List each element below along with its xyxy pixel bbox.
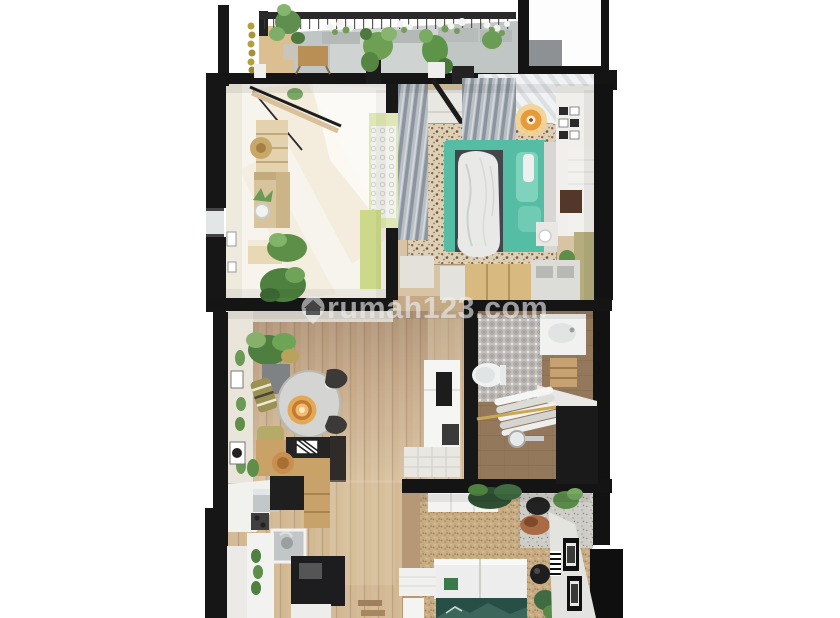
svg-text:rumah123.com: rumah123.com — [327, 291, 548, 325]
